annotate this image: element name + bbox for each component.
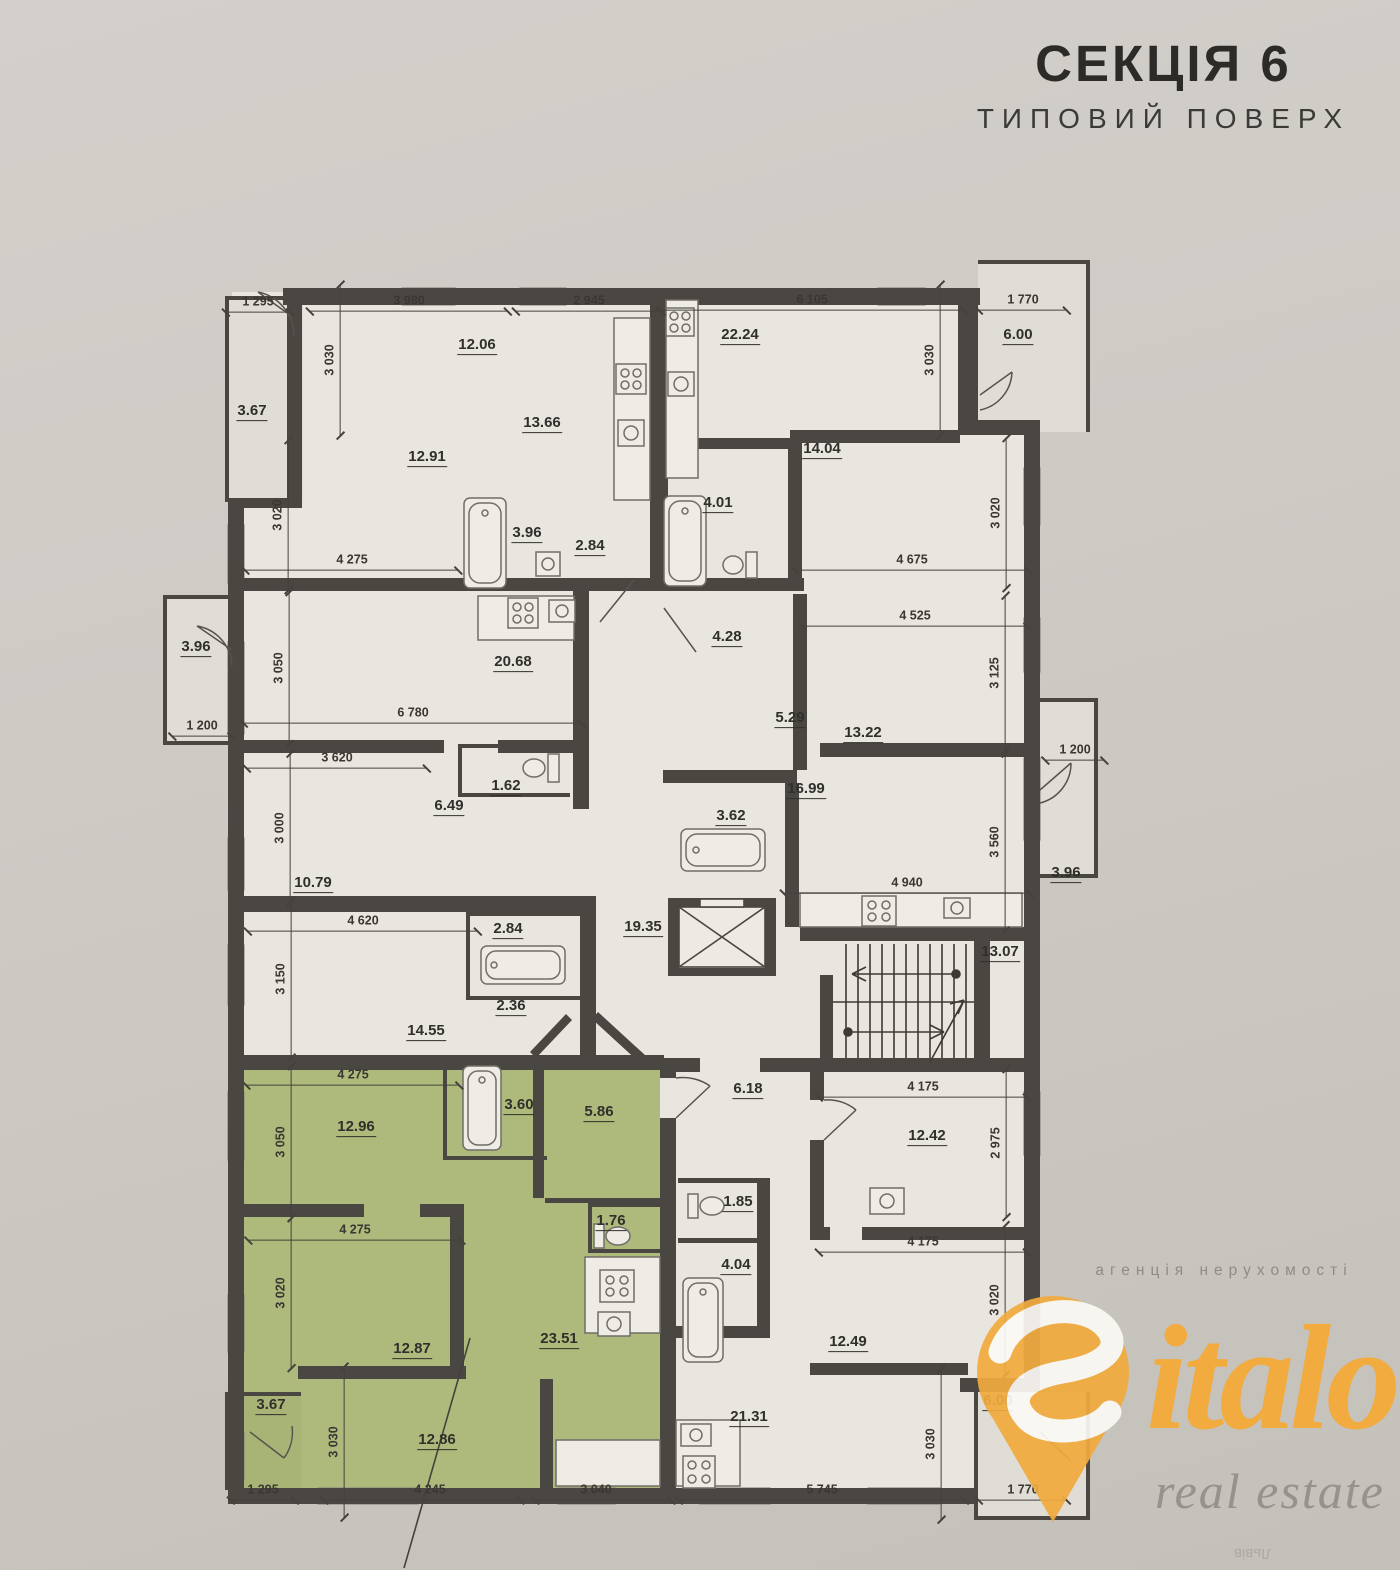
room-area-label: 12.06: [457, 337, 497, 355]
watermark-agency-line: агенція нерухомості: [1078, 1262, 1370, 1280]
room-area-label: 14.55: [406, 1023, 446, 1041]
dimension-label: 3 560: [989, 753, 1006, 931]
room-area-label: 13.07: [980, 944, 1020, 962]
room-area-label: 6.18: [732, 1081, 763, 1099]
room-area-label: 12.42: [907, 1128, 947, 1146]
dimension-label: 3 020: [989, 1225, 1006, 1376]
dimension-label: 3 020: [990, 438, 1007, 589]
room-area-label: 3.62: [715, 808, 746, 826]
room-area-label: 12.87: [392, 1341, 432, 1359]
room-area-label: 1.76: [595, 1213, 626, 1231]
dimension-label: 4 245: [324, 1484, 536, 1501]
room-area-label: 3.96: [511, 525, 542, 543]
watermark-brand: italo: [1146, 1303, 1396, 1453]
room-area-label: 3.96: [180, 639, 211, 657]
room-area-label: 12.96: [336, 1119, 376, 1137]
dimension-label: 1 200: [1045, 744, 1105, 761]
section-title: СЕКЦІЯ 6: [977, 34, 1350, 93]
dimension-label: 6 105: [660, 294, 965, 311]
dimension-label: 2 945: [516, 295, 663, 312]
room-area-label: 6.00: [982, 1393, 1013, 1411]
room-area-label: 12.49: [828, 1334, 868, 1352]
dimension-label: 3 030: [328, 1366, 345, 1518]
dimension-label: 3 150: [275, 900, 292, 1058]
dimension-label: 3 030: [924, 284, 941, 436]
room-area-label: 12.91: [407, 449, 447, 467]
dimension-label: 1 770: [979, 294, 1068, 311]
room-area-label: 1.62: [490, 778, 521, 796]
room-area-label: 21.31: [729, 1409, 769, 1427]
dimension-label: 3 040: [520, 1484, 672, 1501]
room-area-label: 4.01: [702, 495, 733, 513]
dimension-label: 3 020: [272, 440, 289, 591]
title-block: СЕКЦІЯ 6 ТИПОВИЙ ПОВЕРХ: [977, 34, 1350, 135]
room-area-label: 16.99: [786, 781, 826, 799]
room-area-label: 14.04: [802, 441, 842, 459]
room-area-label: 13.22: [843, 725, 883, 743]
room-area-label: 3.96: [1050, 865, 1081, 883]
floor-type-subtitle: ТИПОВИЙ ПОВЕРХ: [977, 103, 1350, 135]
dimension-label: 3 030: [925, 1368, 942, 1520]
room-area-label: 10.79: [293, 875, 333, 893]
room-area-label: 20.68: [493, 654, 533, 672]
room-area-label: 4.04: [720, 1257, 751, 1275]
room-area-label: 22.24: [720, 327, 760, 345]
room-area-label: 6.49: [433, 798, 464, 816]
dimension-label: 3 020: [275, 1218, 292, 1369]
room-area-label: 12.86: [417, 1432, 457, 1450]
dimension-label: 5 745: [679, 1484, 966, 1501]
room-area-label: 3.67: [236, 403, 267, 421]
room-area-label: 23.51: [539, 1331, 579, 1349]
dimension-label: 3 050: [273, 592, 290, 745]
dimension-label: 3 030: [324, 284, 341, 436]
room-area-label: 3.60: [503, 1097, 534, 1115]
room-area-label: 5.86: [583, 1104, 614, 1122]
room-area-label: 2.84: [574, 538, 605, 556]
room-area-label: 5.29: [774, 710, 805, 728]
dimension-label: 6 780: [244, 707, 583, 724]
room-area-label: 2.84: [492, 921, 523, 939]
dimension-label: 1 200: [172, 720, 232, 737]
watermark-city: Львів: [1234, 1545, 1271, 1562]
watermark-tagline: real estate: [1155, 1462, 1385, 1520]
room-area-label: 13.66: [522, 415, 562, 433]
dimension-label: 1 770: [979, 1484, 1068, 1501]
dimension-label: 1 295: [226, 296, 291, 313]
dimension-label: 3 000: [274, 753, 291, 903]
room-area-label: 4.28: [711, 629, 742, 647]
floorplan-page: 12.0613.6612.913.962.843.6722.2414.044.0…: [0, 0, 1400, 1570]
dimension-label: 1 295: [231, 1484, 296, 1501]
dimension-label: 3 125: [989, 595, 1006, 751]
room-area-label: 6.00: [1002, 327, 1033, 345]
dimension-label: 3 050: [275, 1066, 292, 1219]
dimension-label: 2 975: [990, 1069, 1007, 1218]
room-area-label: 2.36: [495, 998, 526, 1016]
room-area-label: 3.67: [255, 1397, 286, 1415]
room-area-label: 1.85: [722, 1194, 753, 1212]
room-area-label: 19.35: [623, 919, 663, 937]
